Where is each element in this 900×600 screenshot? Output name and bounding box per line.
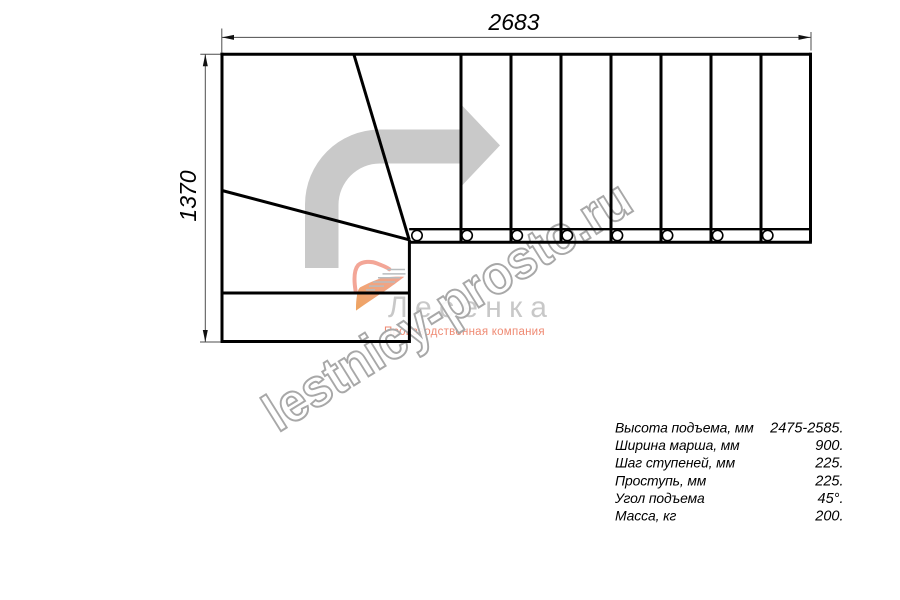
svg-text:Шаг ступеней, мм: Шаг ступеней, мм (615, 455, 736, 471)
svg-text:225.: 225. (814, 473, 843, 489)
svg-text:Угол подъема: Угол подъема (614, 490, 705, 506)
svg-text:225.: 225. (814, 456, 843, 472)
svg-text:45°.: 45°. (818, 491, 844, 507)
svg-text:200.: 200. (814, 509, 843, 525)
svg-text:900.: 900. (815, 438, 843, 454)
svg-text:Проступь, мм: Проступь, мм (615, 472, 707, 488)
svg-text:1370: 1370 (175, 170, 201, 221)
svg-text:2683: 2683 (487, 9, 539, 35)
svg-text:Ширина марша, мм: Ширина марша, мм (615, 437, 740, 453)
svg-text:Масса, кг: Масса, кг (615, 508, 677, 524)
svg-text:Высота подъема, мм: Высота подъема, мм (615, 420, 754, 436)
svg-text:2475-2585.: 2475-2585. (769, 421, 843, 437)
